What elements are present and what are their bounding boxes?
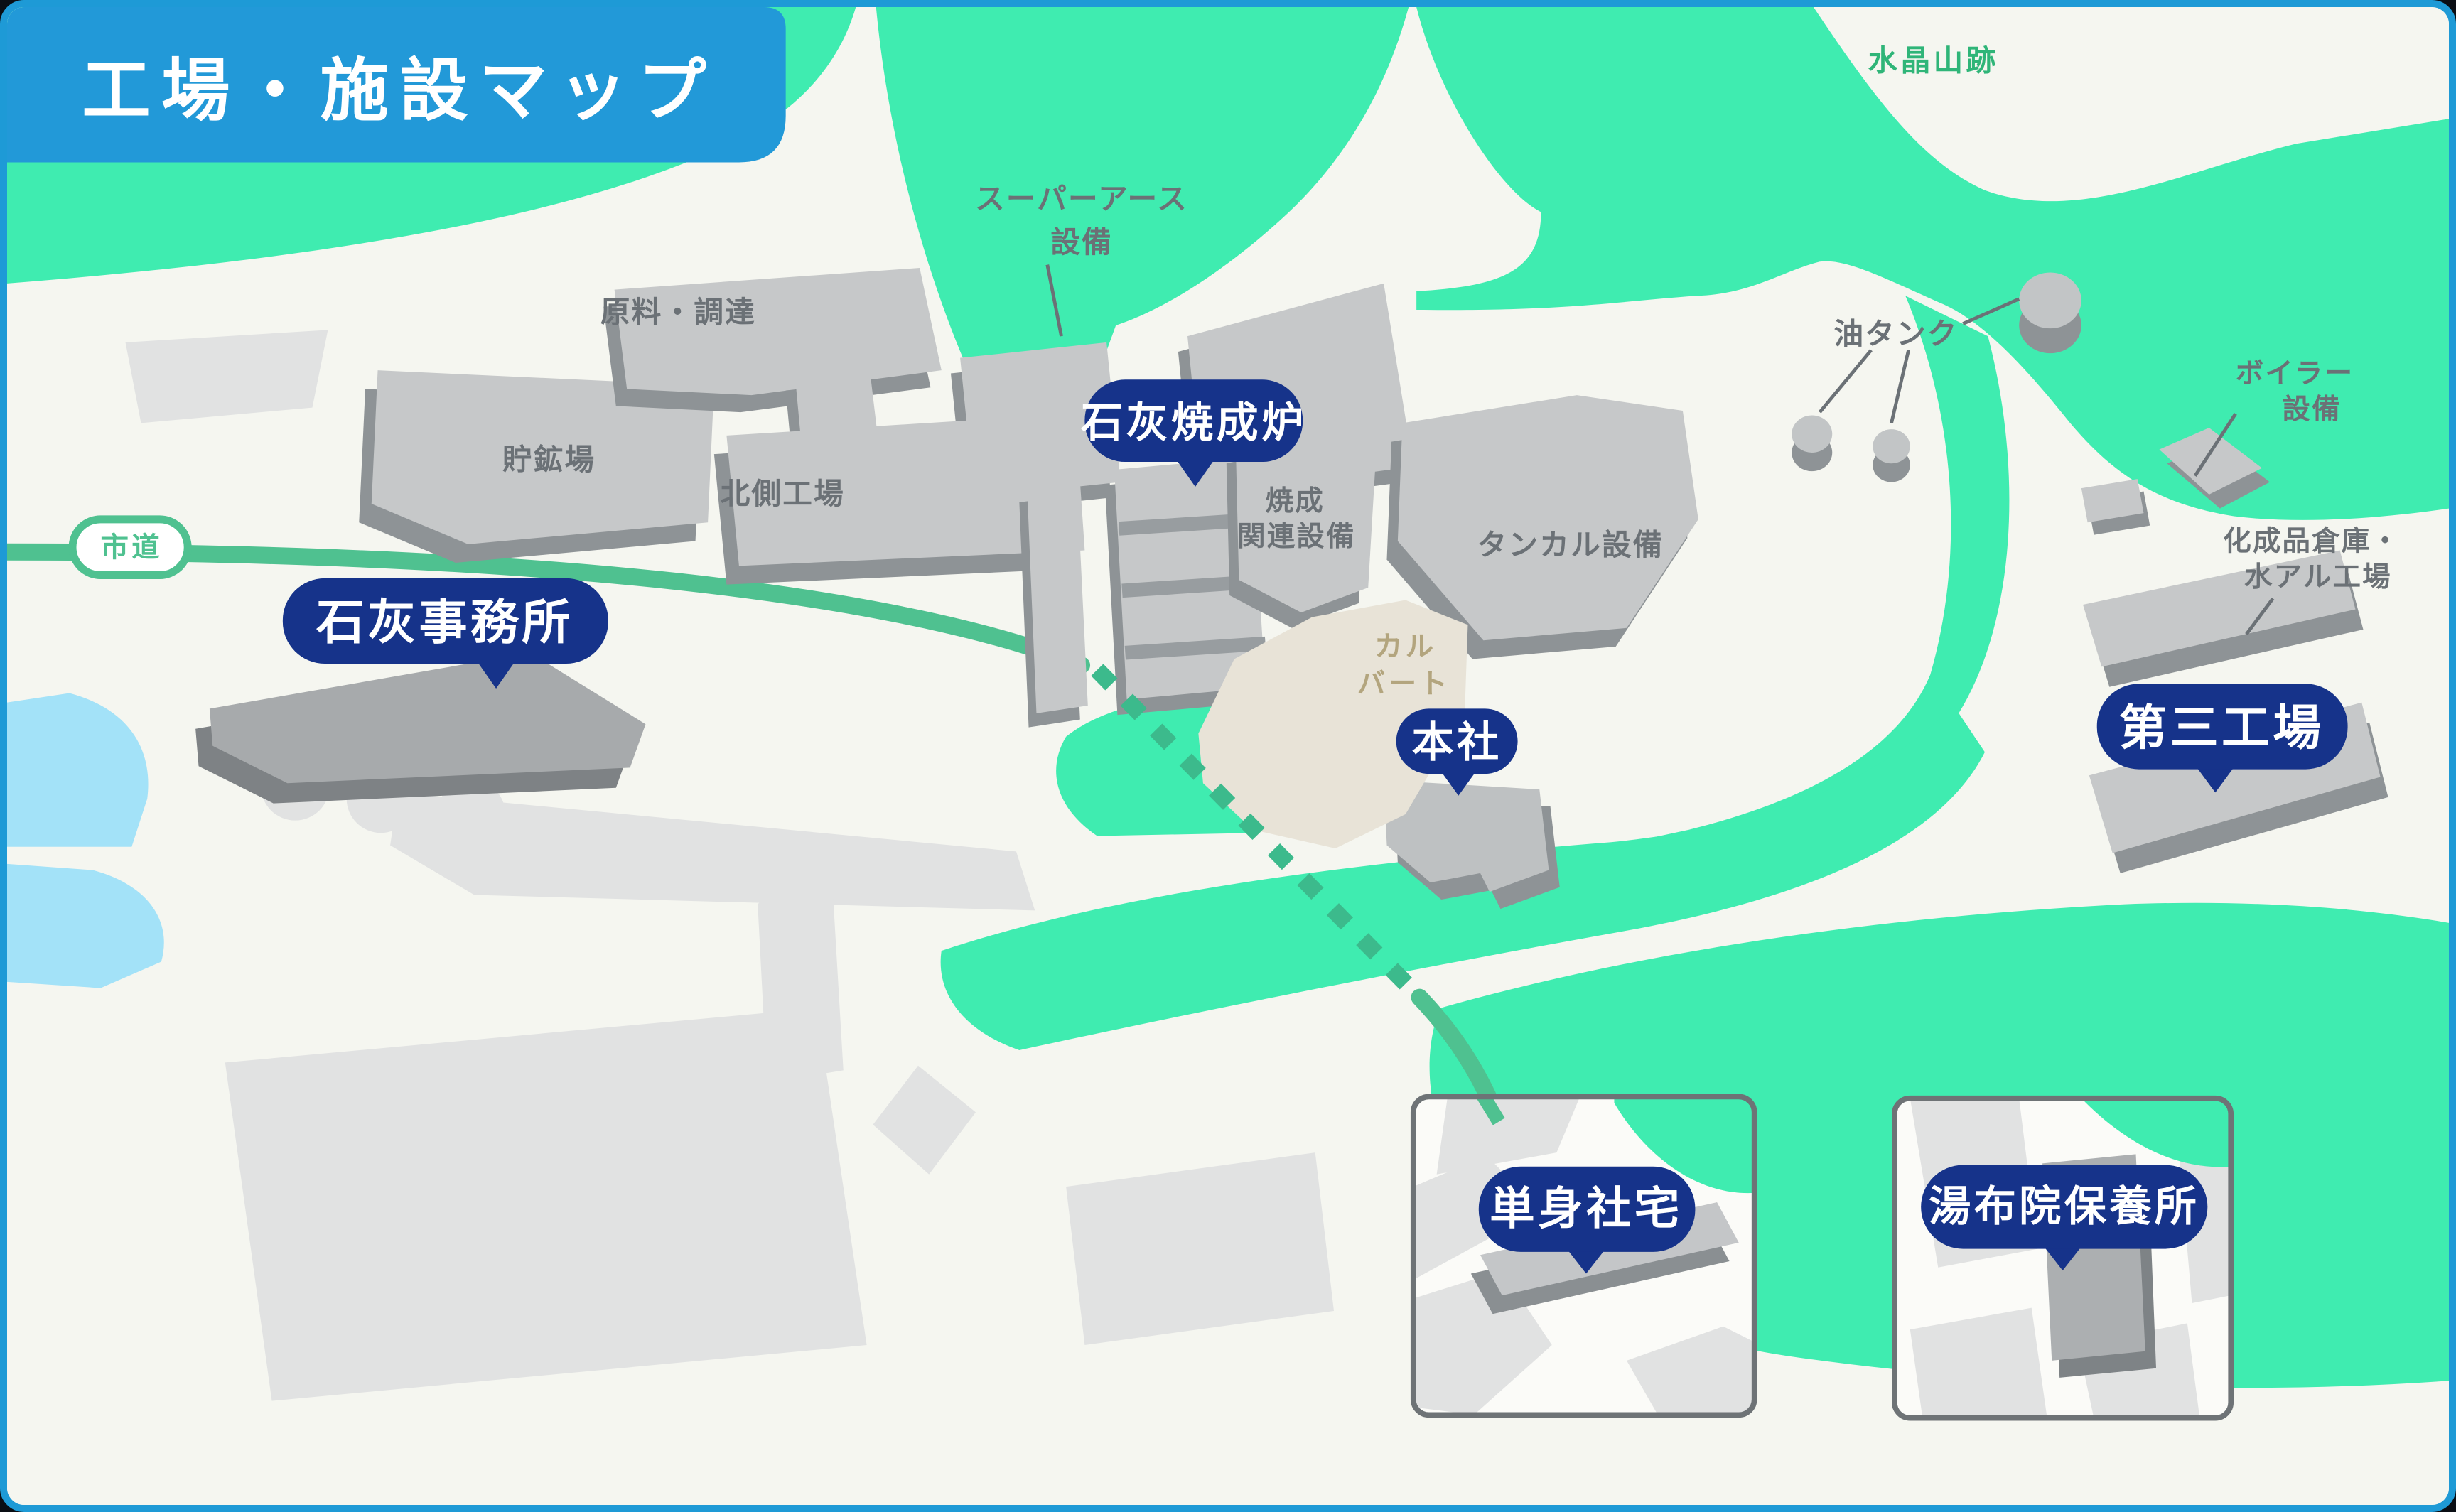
label-boiler-1: ボイラー — [2236, 358, 2354, 389]
label-super-earth-1: スーパーアース — [975, 182, 1188, 215]
road-name-label: 市道 — [100, 531, 163, 563]
building-kiln-tower-left — [1019, 482, 1087, 727]
culvert-label-2: バート — [1357, 669, 1450, 700]
inset-dormitory[interactable]: 単身社宅 — [1413, 1093, 1755, 1415]
label-calcine-1: 焼成 — [1266, 485, 1325, 517]
badge-third-plant-label: 第三工場 — [2118, 702, 2324, 755]
label-tankal: タンカル設備 — [1477, 528, 1664, 561]
building-raw-materials — [603, 268, 942, 412]
label-north-plant: 北側工場 — [721, 477, 845, 510]
label-chem-1: 化成品倉庫・ — [2223, 526, 2401, 557]
label-chem-2: 水アル工場 — [2244, 561, 2392, 593]
label-ore-storage: 貯鉱場 — [502, 443, 596, 476]
page-title: 工場・施設マップ — [82, 53, 717, 129]
label-oil-tank: 油タンク — [1833, 317, 1958, 350]
badge-head-office-label: 本社 — [1412, 719, 1502, 766]
badge-yufuin-label: 湯布院保養所 — [1929, 1183, 2199, 1230]
badge-office-label: 石灰事務所 — [316, 596, 573, 649]
facility-map: カル バート スーパーアース 設備 原料・調達 貯鉱場 北側工場 焼成 関連設備… — [0, 0, 2456, 1512]
label-boiler-2: 設備 — [2283, 394, 2342, 425]
inset-yufuin[interactable]: 湯布院保養所 — [1895, 1098, 2231, 1418]
label-calcine-2: 関連設備 — [1237, 521, 1356, 552]
label-raw-materials: 原料・調達 — [600, 296, 756, 329]
badge-dormitory-label: 単身社宅 — [1490, 1184, 1683, 1234]
culvert-label-1: カル — [1374, 631, 1437, 662]
label-super-earth-2: 設備 — [1050, 225, 1113, 259]
label-mountain: 水晶山跡 — [1868, 44, 1999, 77]
title-banner: 工場・施設マップ — [7, 7, 786, 162]
badge-kiln-label: 石灰焼成炉 — [1081, 399, 1307, 446]
road-name-pill: 市道 — [72, 519, 188, 576]
